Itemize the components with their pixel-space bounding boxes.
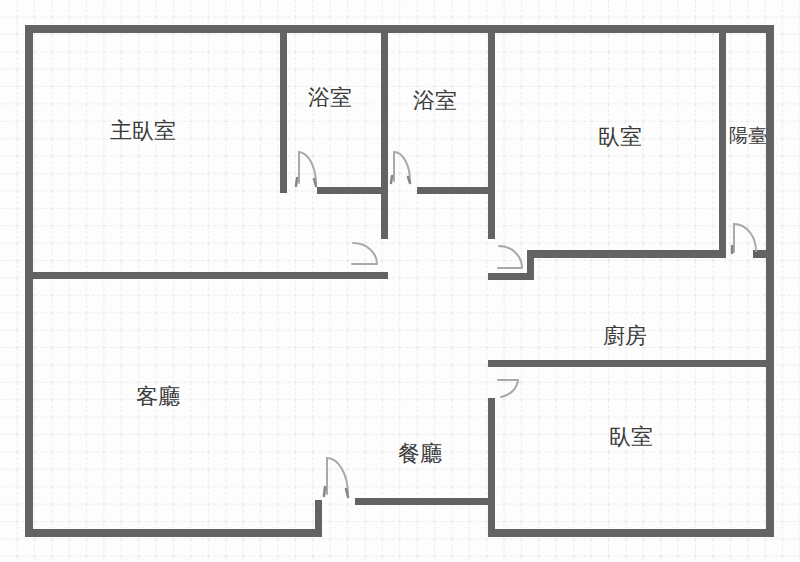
wall-kitchen-bottom: [488, 360, 774, 367]
room-label-master-bedroom: 主臥室: [110, 118, 176, 143]
wall-kitchen-top-left: [488, 273, 534, 280]
wall-bathroom2-bedroom: [488, 30, 495, 239]
wall-bathroom2-bottom: [417, 187, 495, 194]
floor-plan: 主臥室 浴室 浴室 臥室 陽臺 客廳 餐廳 廚房 臥室: [0, 0, 800, 562]
room-label-bathroom-1: 浴室: [308, 85, 352, 110]
wall-bottom-living: [25, 529, 322, 537]
wall-bathroom1-bathroom2: [381, 30, 388, 239]
wall-outer-top: [25, 25, 774, 33]
wall-bedroomTR-bottom: [530, 250, 726, 258]
room-label-bedroom-top-right: 臥室: [598, 124, 642, 149]
room-label-bedroom-bottom-right: 臥室: [609, 424, 653, 449]
wall-outer-right: [766, 25, 774, 537]
room-label-bathroom-2: 浴室: [413, 88, 457, 113]
wall-corridor-bottom: [30, 272, 388, 279]
room-label-living-room: 客廳: [136, 384, 180, 409]
floor-plan-canvas: 主臥室 浴室 浴室 臥室 陽臺 客廳 餐廳 廚房 臥室: [0, 0, 800, 562]
wall-entry-step: [315, 500, 322, 537]
wall-bottom-bedroom: [488, 529, 774, 537]
wall-dining-recess: [355, 498, 495, 505]
grid-overlay: [0, 0, 800, 562]
room-label-dining-room: 餐廳: [398, 441, 442, 466]
wall-kitchen-bedroom-vertical: [488, 398, 495, 537]
wall-master-bathroom1: [280, 30, 287, 193]
wall-bathroom1-bottom: [317, 187, 388, 194]
room-label-kitchen: 廚房: [603, 323, 647, 348]
room-label-balcony: 陽臺: [729, 125, 767, 146]
wall-outer-left: [25, 25, 33, 537]
wall-bedroom-balcony: [719, 30, 726, 256]
